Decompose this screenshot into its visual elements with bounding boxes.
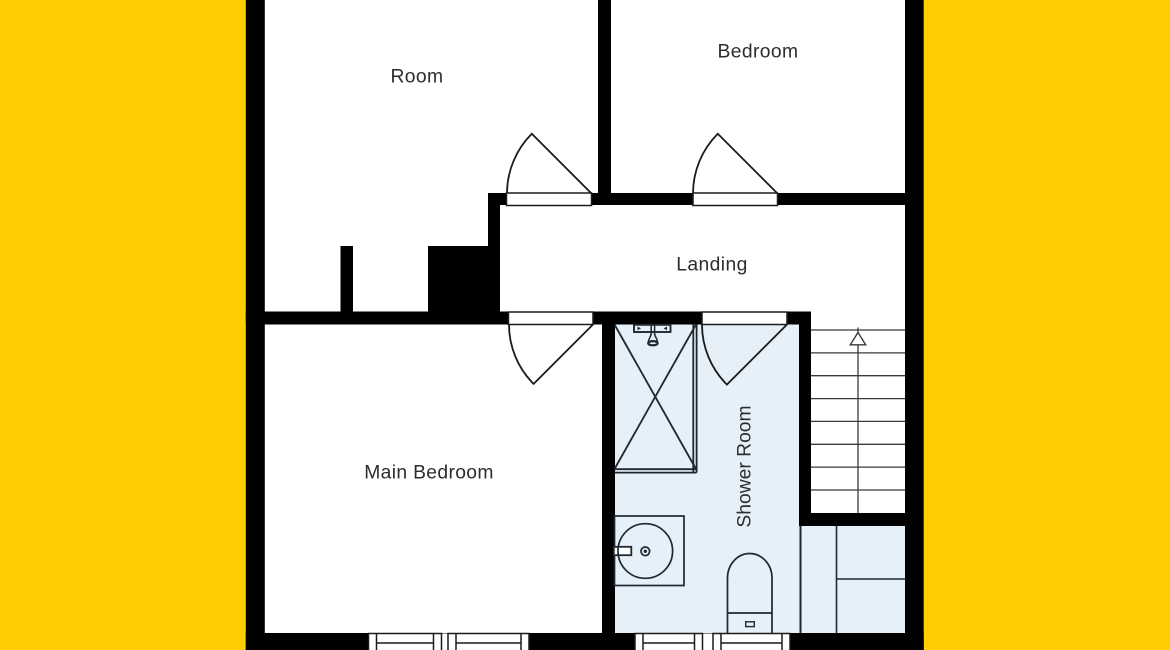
svg-text:Landing: Landing bbox=[676, 255, 747, 276]
svg-text:Shower Room: Shower Room bbox=[735, 405, 756, 527]
svg-text:Main Bedroom: Main Bedroom bbox=[364, 463, 494, 484]
svg-text:Bedroom: Bedroom bbox=[717, 42, 798, 63]
svg-text:Room: Room bbox=[390, 67, 443, 88]
